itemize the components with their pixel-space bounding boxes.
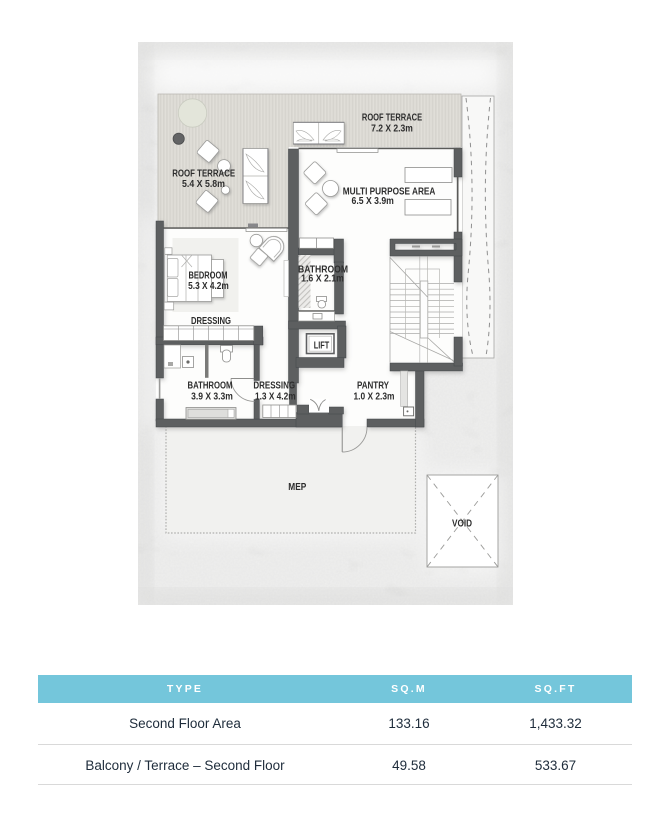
svg-text:BEDROOM: BEDROOM (189, 270, 228, 281)
svg-text:1.0 X 2.3m: 1.0 X 2.3m (354, 391, 395, 402)
svg-text:5.3 X 4.2m: 5.3 X 4.2m (188, 281, 229, 292)
svg-text:7.2 X 2.3m: 7.2 X 2.3m (371, 123, 413, 134)
svg-text:MEP: MEP (288, 482, 306, 493)
svg-text:DRESSING: DRESSING (253, 381, 295, 392)
svg-text:VOID: VOID (452, 519, 472, 530)
svg-text:6.5 X 3.9m: 6.5 X 3.9m (352, 196, 394, 207)
svg-text:BATHROOM: BATHROOM (188, 381, 233, 392)
svg-text:PANTRY: PANTRY (357, 381, 389, 392)
svg-text:ROOF TERRACE: ROOF TERRACE (172, 168, 235, 179)
svg-text:3.9 X 3.3m: 3.9 X 3.3m (191, 391, 233, 402)
svg-text:DRESSING: DRESSING (191, 316, 231, 327)
svg-text:1.3 X 4.2m: 1.3 X 4.2m (255, 391, 296, 402)
svg-text:5.4 X 5.8m: 5.4 X 5.8m (182, 179, 225, 190)
svg-text:ROOF TERRACE: ROOF TERRACE (362, 112, 422, 123)
svg-text:1.6 X 2.1m: 1.6 X 2.1m (301, 273, 344, 284)
svg-text:LIFT: LIFT (314, 341, 330, 352)
